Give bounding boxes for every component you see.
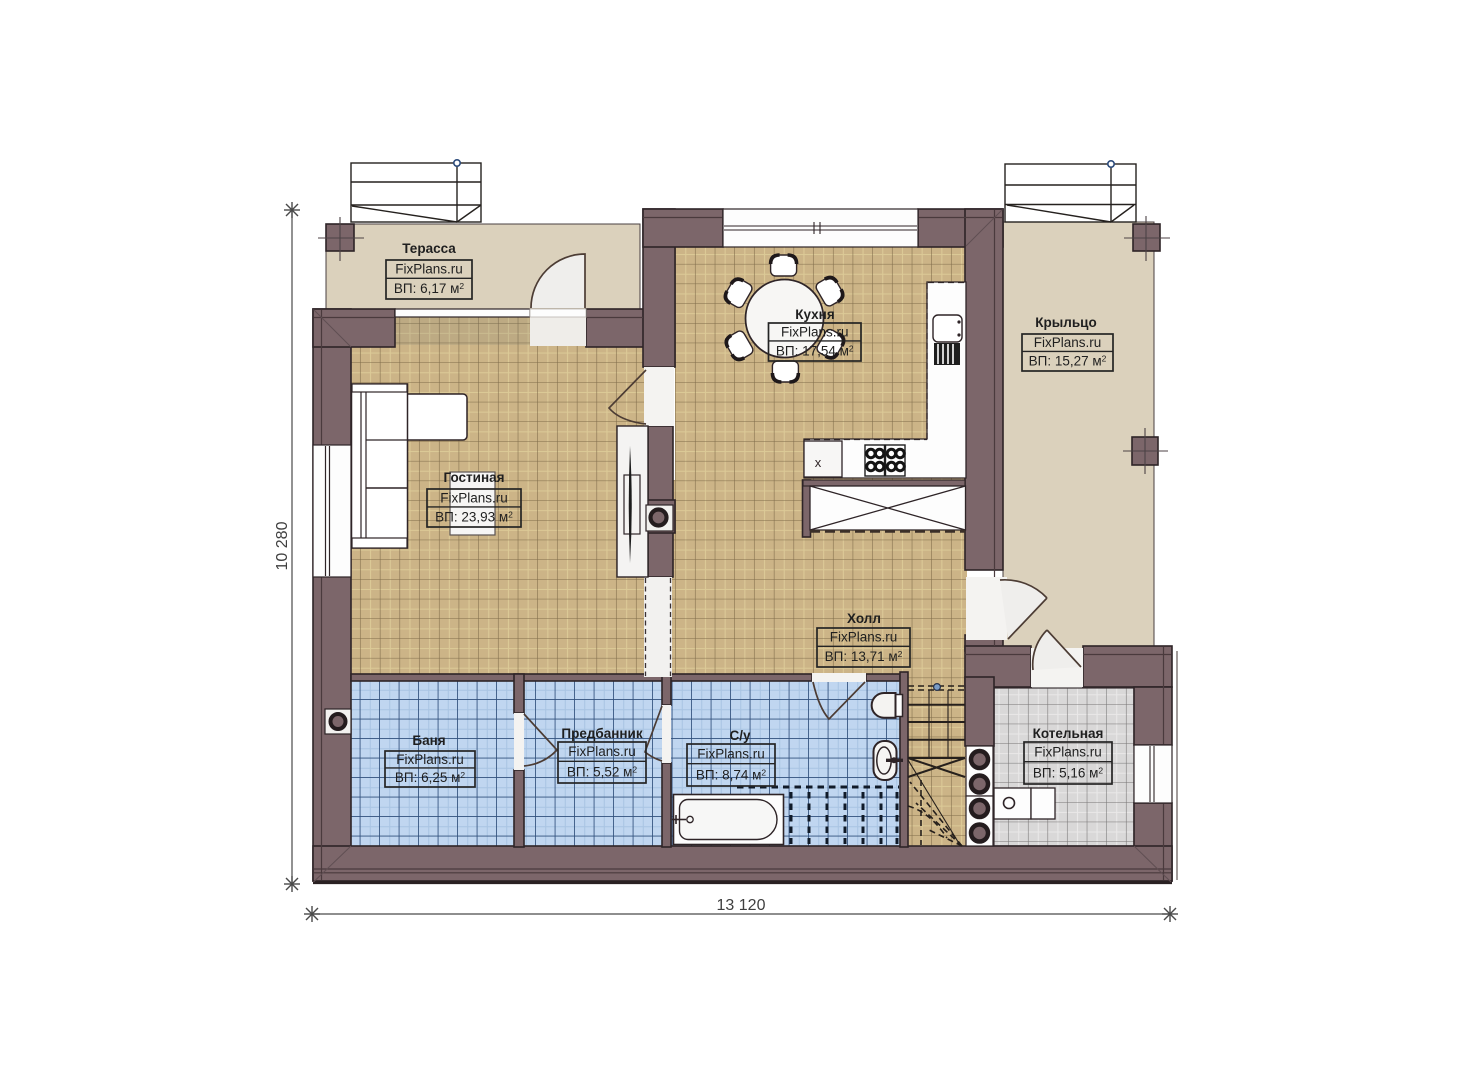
svg-text:ВП: 23,93 м2: ВП: 23,93 м2 xyxy=(435,509,513,524)
svg-text:Крыльцо: Крыльцо xyxy=(1035,315,1096,330)
svg-text:ВП: 17,54 м2: ВП: 17,54 м2 xyxy=(776,343,854,358)
svg-text:ВП: 13,71 м2: ВП: 13,71 м2 xyxy=(825,649,903,664)
svg-text:Кухня: Кухня xyxy=(795,307,834,322)
svg-text:х: х xyxy=(815,455,822,470)
svg-text:FixPlans.ru: FixPlans.ru xyxy=(830,630,898,645)
svg-text:ВП: 6,17 м2: ВП: 6,17 м2 xyxy=(394,281,465,296)
svg-text:FixPlans.ru: FixPlans.ru xyxy=(1034,744,1102,759)
svg-text:13 120: 13 120 xyxy=(717,897,766,914)
svg-text:FixPlans.ru: FixPlans.ru xyxy=(440,490,508,505)
svg-text:10 280: 10 280 xyxy=(274,521,291,570)
svg-text:FixPlans.ru: FixPlans.ru xyxy=(396,752,464,767)
svg-text:FixPlans.ru: FixPlans.ru xyxy=(1034,335,1102,350)
svg-text:Баня: Баня xyxy=(412,733,445,748)
svg-text:ВП: 8,74 м2: ВП: 8,74 м2 xyxy=(696,767,767,782)
svg-text:С/у: С/у xyxy=(729,728,751,743)
svg-text:FixPlans.ru: FixPlans.ru xyxy=(697,746,765,761)
svg-text:ВП: 6,25 м2: ВП: 6,25 м2 xyxy=(395,770,466,785)
svg-text:Котельная: Котельная xyxy=(1033,726,1104,741)
svg-text:FixPlans.ru: FixPlans.ru xyxy=(781,324,849,339)
svg-text:Гостиная: Гостиная xyxy=(443,470,504,485)
svg-text:ВП: 5,16 м2: ВП: 5,16 м2 xyxy=(1033,765,1104,780)
svg-text:Терасса: Терасса xyxy=(402,241,456,256)
svg-text:FixPlans.ru: FixPlans.ru xyxy=(568,744,636,759)
svg-text:Холл: Холл xyxy=(847,611,881,626)
svg-text:FixPlans.ru: FixPlans.ru xyxy=(395,262,463,277)
svg-text:ВП: 5,52 м2: ВП: 5,52 м2 xyxy=(567,765,638,780)
svg-text:ВП: 15,27 м2: ВП: 15,27 м2 xyxy=(1029,354,1107,369)
svg-text:Предбанник: Предбанник xyxy=(561,726,642,741)
